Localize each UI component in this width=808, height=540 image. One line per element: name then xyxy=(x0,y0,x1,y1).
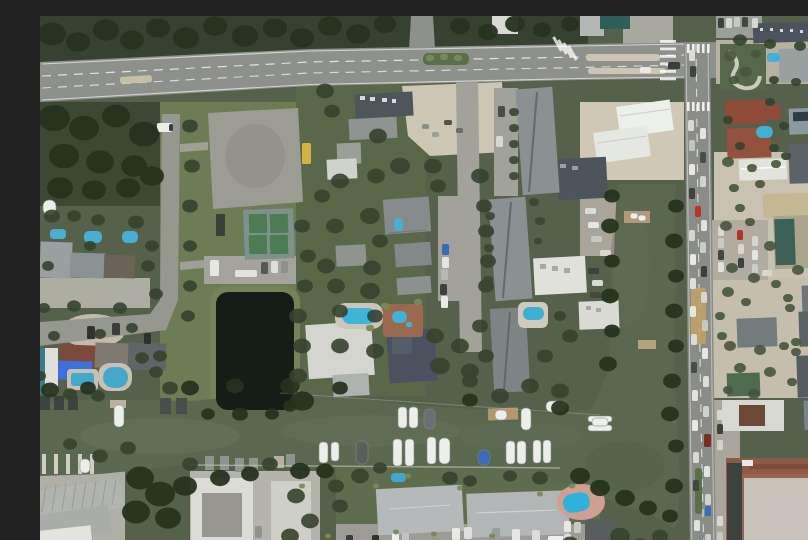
vehicle xyxy=(705,534,711,540)
tree-canopy xyxy=(360,283,380,299)
vehicle xyxy=(737,230,743,240)
tree-canopy xyxy=(791,78,801,86)
tree-canopy xyxy=(301,514,319,529)
boat xyxy=(517,441,526,464)
tree-canopy xyxy=(509,124,519,132)
tree-canopy xyxy=(534,238,542,245)
vehicle xyxy=(695,206,701,217)
vehicle xyxy=(693,480,699,491)
apartment-pool xyxy=(523,307,544,320)
boat xyxy=(592,418,608,426)
tree-canopy xyxy=(47,177,73,198)
boat xyxy=(521,408,531,430)
tree-canopy xyxy=(373,462,387,473)
tree-canopy xyxy=(533,23,551,38)
vehicle xyxy=(689,188,695,199)
vehicle xyxy=(689,230,695,241)
tree-canopy xyxy=(369,129,387,144)
vehicle xyxy=(281,261,288,273)
tree-canopy xyxy=(327,279,345,294)
tree-canopy xyxy=(92,449,108,462)
vehicle xyxy=(112,323,120,335)
tree-canopy xyxy=(324,104,340,117)
tree-canopy xyxy=(263,18,287,38)
tree-canopy xyxy=(210,470,230,486)
tree-canopy xyxy=(141,260,155,271)
vehicle xyxy=(444,120,452,125)
tree-canopy xyxy=(599,357,617,372)
vehicle xyxy=(235,270,257,277)
tree-canopy xyxy=(787,378,797,386)
vehicle xyxy=(752,250,758,260)
tree-canopy xyxy=(554,311,566,321)
boat xyxy=(356,441,368,464)
tree-canopy xyxy=(241,467,259,482)
vehicle xyxy=(704,466,710,477)
tree-canopy xyxy=(769,76,779,84)
tree-canopy xyxy=(561,17,579,32)
tree-canopy xyxy=(155,507,181,528)
tree-canopy xyxy=(734,363,746,373)
tree-canopy xyxy=(503,470,517,481)
tree-canopy xyxy=(122,501,150,524)
tree-canopy xyxy=(293,339,311,354)
tree-canopy xyxy=(289,309,307,324)
vehicle xyxy=(718,238,724,248)
vehicle xyxy=(668,62,680,69)
tree-canopy xyxy=(509,108,519,116)
tree-canopy xyxy=(183,240,197,251)
boat xyxy=(427,437,436,464)
tree-canopy xyxy=(332,499,348,512)
vehicle xyxy=(402,533,409,540)
boat xyxy=(393,439,402,466)
teal-building xyxy=(600,16,630,29)
boat xyxy=(543,440,551,463)
tree-canopy xyxy=(715,312,725,320)
tree-canopy xyxy=(792,265,804,275)
tree-canopy xyxy=(366,344,384,359)
vehicle xyxy=(346,535,353,540)
aerial-photo-canvas xyxy=(40,16,808,540)
boat xyxy=(439,438,450,464)
vehicle xyxy=(738,244,744,254)
tree-canopy xyxy=(748,389,760,399)
vehicle xyxy=(432,132,439,137)
vehicle xyxy=(592,280,603,286)
vehicle xyxy=(704,434,711,447)
vehicle xyxy=(690,306,696,317)
vehicle xyxy=(452,528,460,540)
vehicle xyxy=(701,220,707,231)
tree-canopy xyxy=(314,189,330,202)
tree-canopy xyxy=(153,350,167,361)
tree-canopy xyxy=(747,164,757,172)
tree-canopy xyxy=(120,441,136,454)
tree-canopy xyxy=(668,269,684,282)
boat xyxy=(80,459,90,473)
vehicle xyxy=(441,296,448,308)
tree-canopy xyxy=(294,219,310,232)
tree-canopy xyxy=(135,352,149,363)
tree-canopy xyxy=(509,140,519,148)
tree-canopy xyxy=(140,166,164,186)
vehicle xyxy=(591,236,602,242)
tree-canopy xyxy=(462,374,478,387)
tree-canopy xyxy=(283,400,297,411)
vehicle xyxy=(717,532,723,540)
tree-canopy xyxy=(129,122,159,147)
tree-canopy xyxy=(86,151,114,174)
condo-row-1 xyxy=(515,87,559,195)
tree-canopy xyxy=(663,374,681,389)
boat xyxy=(533,440,541,463)
vehicle xyxy=(705,494,711,505)
vehicle xyxy=(456,128,463,133)
vehicle xyxy=(752,18,758,28)
tree-canopy xyxy=(265,408,279,419)
tree-canopy xyxy=(316,464,334,479)
vehicle xyxy=(689,50,695,61)
tree-canopy xyxy=(478,24,498,40)
tree-canopy xyxy=(328,479,344,492)
vehicle xyxy=(422,124,429,129)
tree-canopy xyxy=(451,339,469,354)
tree-canopy xyxy=(771,280,781,288)
tree-canopy xyxy=(485,212,495,220)
tree-canopy xyxy=(366,325,374,332)
tree-canopy xyxy=(66,32,90,52)
tree-canopy xyxy=(49,144,79,169)
tree-canopy xyxy=(91,390,105,401)
tree-canopy xyxy=(332,304,348,317)
vehicle xyxy=(588,268,599,274)
tree-canopy xyxy=(201,408,215,419)
retention-pond xyxy=(216,292,294,410)
vehicle xyxy=(590,292,601,298)
tree-canopy xyxy=(755,180,765,188)
vehicle xyxy=(512,529,520,540)
tree-canopy xyxy=(181,381,199,396)
tree-canopy xyxy=(183,280,197,291)
tree-canopy xyxy=(173,27,199,48)
vehicle xyxy=(700,152,706,163)
vehicle xyxy=(692,390,698,401)
tree-canopy xyxy=(94,329,106,339)
tree-canopy xyxy=(726,263,738,273)
tree-canopy xyxy=(570,468,590,484)
tree-canopy xyxy=(440,54,448,61)
vehicle xyxy=(726,18,732,28)
tree-canopy xyxy=(668,199,684,212)
tree-canopy xyxy=(128,215,144,228)
tree-canopy xyxy=(724,51,736,61)
tree-canopy xyxy=(668,339,684,352)
tree-canopy xyxy=(82,180,106,200)
vehicle xyxy=(702,320,708,331)
vehicle xyxy=(692,420,698,431)
tree-canopy xyxy=(162,381,178,394)
boat xyxy=(319,442,328,463)
tree-canopy xyxy=(722,157,734,167)
vehicle xyxy=(717,424,723,434)
tree-canopy xyxy=(794,41,806,51)
tree-canopy xyxy=(771,160,781,168)
vehicle xyxy=(691,362,697,373)
vehicle xyxy=(372,535,379,540)
slab-stain xyxy=(225,124,285,188)
tree-canopy xyxy=(367,169,385,184)
tree-canopy xyxy=(390,158,410,174)
tree-canopy xyxy=(203,16,227,36)
tree-canopy xyxy=(42,261,54,271)
tree-canopy xyxy=(785,304,795,312)
tree-canopy xyxy=(262,457,278,470)
tree-canopy xyxy=(783,294,793,302)
vehicle xyxy=(752,236,758,246)
aerial-photograph xyxy=(40,16,808,540)
tree-canopy xyxy=(562,329,578,342)
tree-canopy xyxy=(668,439,684,452)
vehicle xyxy=(640,67,651,73)
tree-canopy xyxy=(287,489,305,504)
tree-canopy xyxy=(489,534,495,539)
vehicle xyxy=(688,120,694,131)
tree-canopy xyxy=(290,463,310,479)
tree-canopy xyxy=(182,119,198,132)
tree-canopy xyxy=(537,492,543,497)
boat xyxy=(478,450,490,465)
tree-canopy xyxy=(724,341,736,351)
tree-canopy xyxy=(290,28,314,48)
tree-canopy xyxy=(346,24,370,44)
tree-canopy xyxy=(729,184,739,192)
tan-building xyxy=(763,192,808,219)
tree-canopy xyxy=(63,438,77,449)
vehicle xyxy=(702,348,708,359)
tree-canopy xyxy=(232,25,258,46)
tree-canopy xyxy=(299,484,305,489)
tree-canopy xyxy=(67,210,81,221)
vehicle xyxy=(752,264,758,274)
vehicle xyxy=(691,334,697,345)
tree-canopy xyxy=(226,379,244,394)
tree-canopy xyxy=(551,401,569,416)
tree-canopy xyxy=(717,332,727,340)
tree-canopy xyxy=(791,348,801,356)
tree-canopy xyxy=(665,479,683,494)
tree-canopy xyxy=(149,366,163,377)
tree-canopy xyxy=(491,389,509,404)
tree-canopy xyxy=(146,18,170,38)
tree-canopy xyxy=(722,287,734,297)
tree-canopy xyxy=(367,309,383,322)
tree-canopy xyxy=(381,303,389,310)
vehicle xyxy=(441,269,448,280)
vehicle xyxy=(717,516,723,526)
tree-canopy xyxy=(764,39,776,49)
vehicle xyxy=(700,242,706,253)
north-side-road xyxy=(409,16,435,50)
tree-canopy xyxy=(84,241,96,251)
boat xyxy=(630,213,638,219)
vehicle xyxy=(718,262,724,272)
vehicle xyxy=(734,17,740,27)
tree-canopy xyxy=(426,329,444,344)
tree-canopy xyxy=(363,261,381,276)
vehicle xyxy=(271,261,278,273)
tree-canopy xyxy=(471,169,489,184)
tree-canopy xyxy=(740,67,752,77)
tree-canopy xyxy=(405,474,411,479)
driveway-row xyxy=(40,278,150,308)
tree-canopy xyxy=(426,55,434,62)
tree-canopy xyxy=(63,388,77,399)
vehicle xyxy=(718,18,724,28)
tree-canopy xyxy=(120,30,144,50)
tree-canopy xyxy=(317,259,335,274)
tree-canopy xyxy=(639,501,657,516)
side-street-vertical xyxy=(160,114,180,300)
boat xyxy=(424,409,435,429)
tree-canopy xyxy=(662,509,678,522)
tree-canopy xyxy=(431,532,437,537)
tree-canopy xyxy=(325,534,331,539)
vehicle xyxy=(532,530,540,540)
tree-canopy xyxy=(149,288,163,299)
tree-canopy xyxy=(745,218,755,226)
vehicle xyxy=(496,136,503,147)
vehicle xyxy=(169,124,173,131)
tree-canopy xyxy=(297,279,313,292)
vehicle xyxy=(690,66,696,77)
tree-canopy xyxy=(232,407,248,420)
vehicle xyxy=(689,140,695,151)
tree-canopy xyxy=(326,219,344,234)
vehicle xyxy=(690,278,696,289)
tree-canopy xyxy=(483,276,493,284)
tree-canopy xyxy=(331,339,349,354)
boat xyxy=(331,442,339,461)
tree-canopy xyxy=(532,471,548,484)
tree-canopy xyxy=(102,105,130,128)
tree-canopy xyxy=(145,482,175,507)
tree-canopy xyxy=(372,234,388,247)
tree-canopy xyxy=(454,55,462,62)
tree-canopy xyxy=(735,142,745,150)
tree-canopy xyxy=(723,116,733,124)
boat xyxy=(409,407,418,428)
tree-canopy xyxy=(661,407,679,422)
vehicle xyxy=(738,258,744,268)
tree-canopy xyxy=(791,338,801,346)
tree-canopy xyxy=(41,383,59,398)
tree-canopy xyxy=(478,349,494,362)
boat xyxy=(398,407,407,428)
tree-canopy xyxy=(373,484,379,489)
tree-canopy xyxy=(351,469,369,484)
tree-canopy xyxy=(748,273,760,283)
vehicle xyxy=(442,257,449,268)
tree-canopy xyxy=(316,84,334,99)
vehicle xyxy=(690,254,696,265)
tree-canopy xyxy=(604,189,620,202)
vehicle xyxy=(701,266,707,277)
vehicle xyxy=(440,284,447,295)
tree-canopy xyxy=(665,234,683,249)
tree-canopy xyxy=(723,386,733,394)
boat xyxy=(495,410,507,420)
vehicle xyxy=(498,106,505,117)
tree-canopy xyxy=(779,342,789,350)
vehicle xyxy=(548,536,564,540)
tree-canopy xyxy=(414,299,422,306)
tree-canopy xyxy=(450,18,470,34)
vehicle xyxy=(717,440,723,450)
vehicle xyxy=(701,292,707,303)
vehicle xyxy=(588,222,599,228)
tree-canopy xyxy=(733,34,747,45)
boat xyxy=(405,439,414,466)
vehicle xyxy=(703,406,709,417)
vehicle xyxy=(689,164,695,175)
tree-canopy xyxy=(393,530,399,535)
tree-canopy xyxy=(569,484,575,489)
vehicle xyxy=(694,520,700,531)
tree-canopy xyxy=(457,486,463,491)
tree-canopy xyxy=(182,457,198,470)
tree-canopy xyxy=(182,199,198,212)
tree-canopy xyxy=(472,319,488,332)
vehicle xyxy=(718,250,724,260)
tree-canopy xyxy=(521,379,539,394)
vehicle xyxy=(442,244,449,255)
tree-canopy xyxy=(116,178,140,198)
tree-canopy xyxy=(462,393,478,406)
tree-canopy xyxy=(765,98,775,106)
tree-canopy xyxy=(537,349,553,362)
tree-canopy xyxy=(769,144,779,152)
vehicle xyxy=(703,376,709,387)
vehicle xyxy=(464,527,472,539)
tree-canopy xyxy=(181,310,195,321)
tree-canopy xyxy=(442,471,458,484)
tree-canopy xyxy=(331,174,349,189)
vehicle xyxy=(574,522,581,533)
tree-canopy xyxy=(735,204,745,212)
tree-canopy xyxy=(300,249,316,262)
tree-canopy xyxy=(67,300,81,311)
tree-canopy xyxy=(779,122,789,130)
vehicle xyxy=(700,176,706,187)
tree-canopy xyxy=(509,172,519,180)
vehicle xyxy=(585,208,596,214)
tree-canopy xyxy=(754,345,766,355)
tree-canopy xyxy=(484,244,494,252)
tree-canopy xyxy=(665,304,683,319)
tree-canopy xyxy=(729,76,739,84)
tree-canopy xyxy=(483,260,493,268)
tree-canopy xyxy=(590,480,610,496)
vehicle xyxy=(302,143,311,164)
tree-canopy xyxy=(69,116,99,141)
vehicle xyxy=(261,262,268,274)
tree-canopy xyxy=(529,198,539,206)
tree-canopy xyxy=(509,156,519,164)
canal-condo-a xyxy=(376,485,464,535)
vehicle xyxy=(144,333,151,344)
boat xyxy=(638,215,646,221)
